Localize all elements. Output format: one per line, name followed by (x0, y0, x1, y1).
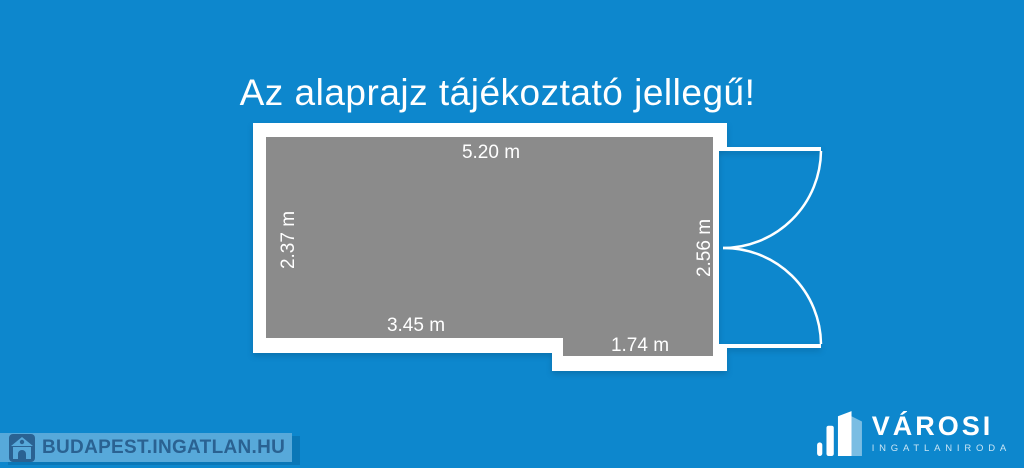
dimension-label-top: 5.20 m (462, 142, 520, 163)
house-icon (9, 434, 35, 462)
door-swing-arc-bottom (723, 248, 821, 344)
floorplan: 5.20 m 3.45 m 1.74 m 2.37 m 2.56 m (0, 0, 1024, 468)
agency-logo: VÁROSI INGATLANIRODA (815, 407, 1011, 459)
page-background: { "title": { "text": "Az alaprajz tájéko… (0, 0, 1024, 468)
site-watermark: BUDAPEST.INGATLAN.HU (0, 433, 292, 462)
door-swing-arc-top (723, 151, 821, 248)
watermark-label: BUDAPEST.INGATLAN.HU (42, 438, 285, 458)
dimension-label-left: 2.37 m (278, 211, 299, 269)
dimension-label-bottom-left: 3.45 m (387, 315, 445, 336)
room-area (266, 137, 713, 356)
door-leaf-bottom (719, 344, 821, 348)
agency-subtitle: INGATLANIRODA (872, 444, 1011, 454)
agency-name: VÁROSI (872, 413, 994, 440)
dimension-label-right: 2.56 m (694, 219, 715, 277)
dimension-label-bottom-right: 1.74 m (611, 335, 669, 356)
city-buildings-icon (815, 407, 863, 459)
door-leaf-top (719, 147, 821, 151)
